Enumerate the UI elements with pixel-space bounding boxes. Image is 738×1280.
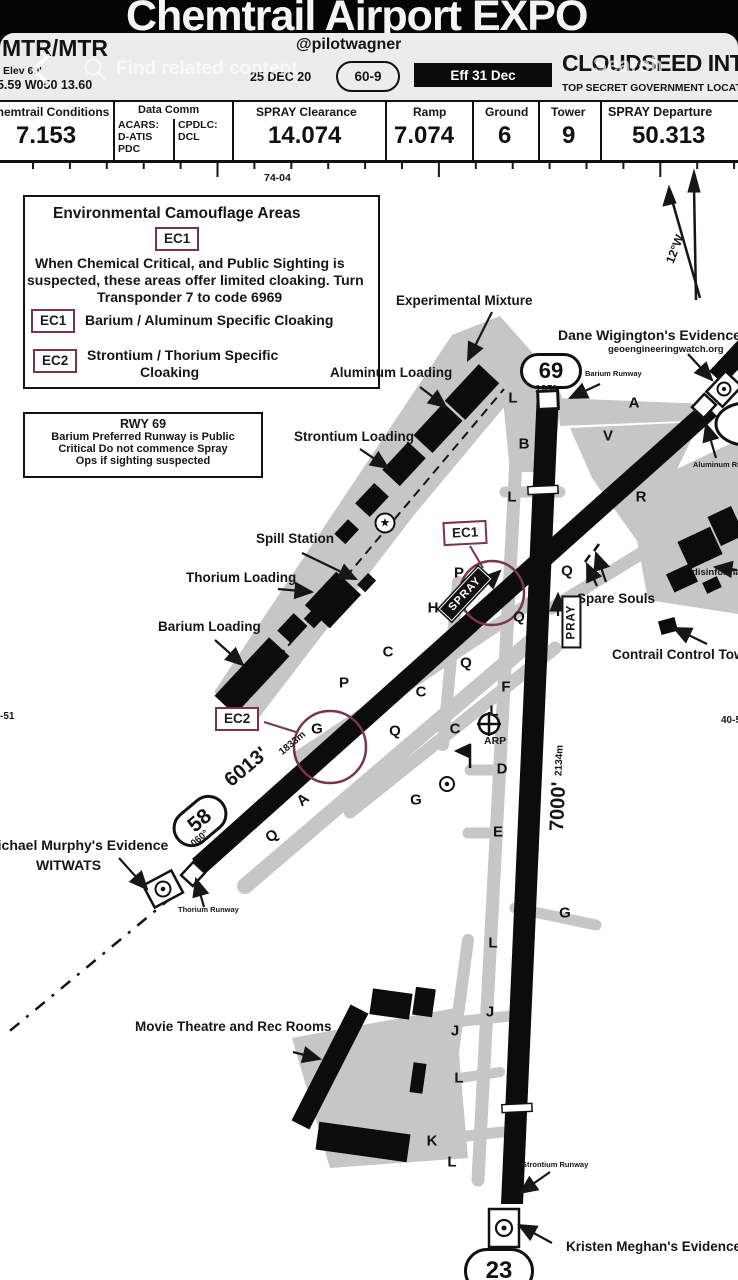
movie-theatre-label: Movie Theatre and Rec Rooms (135, 1019, 332, 1034)
dane-evidence-label: Dane Wigington's Evidence (558, 327, 738, 343)
rwy69-note-box: RWY 69 Barium Preferred Runway is Public… (23, 412, 263, 478)
pray-sign: PRAY (561, 596, 581, 649)
taxiway-letter: L (454, 1070, 463, 1087)
taxiway-letter: Q (513, 609, 525, 626)
ec-box-body-line2: suspected, these areas offer limited clo… (27, 272, 364, 288)
search-pill[interactable] (82, 56, 108, 87)
contrail-tower-label: Contrail Control Tower (612, 647, 738, 662)
michael-evidence-label: Michael Murphy's Evidence (0, 837, 168, 853)
airport-diagram-canvas (0, 0, 738, 1280)
search-icon (82, 56, 108, 82)
taxiway-letter: L (508, 390, 517, 407)
taxiway-letter: H (428, 600, 439, 617)
ec1-description: Barium / Aluminum Specific Cloaking (85, 312, 333, 328)
kristen-evidence-label: Kristen Meghan's Evidence (566, 1239, 738, 1254)
acars-info: ACARS: D-ATIS PDC (118, 119, 159, 155)
thorium-runway-label: Thorium Runway (178, 905, 239, 914)
taxiway-letter: G (311, 721, 323, 738)
circle-dot-center (445, 782, 449, 786)
scale-ruler (33, 161, 734, 177)
taxiway-letter: J (486, 1004, 494, 1021)
ec1-map-badge: EC1 (442, 520, 487, 546)
taxiway-letter: Q (389, 723, 401, 740)
taxiway-letter: R (636, 489, 647, 506)
approach-dash-dot-line (6, 897, 172, 1034)
coord-label-right: 40-5 (721, 715, 738, 726)
ec2-description-line1: Strontium / Thorium Specific (87, 347, 278, 363)
ground-value: 6 (498, 122, 511, 150)
dane-evidence-url: geoengineeringwatch.org (608, 344, 724, 355)
ec1-legend-badge: EC1 (155, 227, 199, 251)
ec-box-title: Environmental Camouflage Areas (53, 205, 301, 223)
effective-date-badge: Eff 31 Dec (414, 63, 552, 87)
arp-label: ARP (484, 735, 506, 747)
clearance-value: 14.074 (268, 122, 341, 150)
aluminum-loading-label: Aluminum Loading (330, 365, 452, 380)
experimental-mixture-label: Experimental Mixture (396, 293, 533, 308)
search-button[interactable]: Search (593, 54, 663, 78)
atis-label: Chemtrail Conditions (0, 105, 109, 119)
airport-subtitle: TOP SECRET GOVERNMENT LOCATION (562, 83, 738, 94)
tower-value: 9 (562, 122, 575, 150)
taxiway-letter: P (454, 565, 464, 582)
taxiway-letter: C (416, 684, 427, 701)
taxiway-letter: E (493, 824, 503, 841)
aluminum-runway-label: Aluminum Runway (693, 460, 738, 469)
taxiway-letter: Q (460, 655, 472, 672)
taxiway-letter: C (383, 644, 394, 661)
cpdlc-info: CPDLC: DCL (178, 119, 218, 143)
ground-label: Ground (485, 105, 528, 119)
rwy-box-line2: Barium Preferred Runway is Public (25, 431, 261, 443)
taxiway-letter: V (603, 428, 613, 445)
runway-69-heading: 195° (535, 383, 557, 395)
runway-number-oval-ne (716, 403, 738, 445)
coord-label-top: 74-04 (264, 172, 291, 184)
taxiway-letter: L (507, 489, 516, 506)
thorium-loading-label: Thorium Loading (186, 570, 296, 585)
author-handle: @pilotwagner (296, 36, 401, 54)
wind-flag-icon (455, 744, 470, 768)
taxiway-letter: J (451, 1023, 459, 1040)
taxiway-letter: L (489, 703, 498, 720)
spare-souls-label: Spare Souls (577, 591, 655, 606)
taxiway-letter: G (410, 792, 422, 809)
taxiway-letter: A (629, 395, 640, 412)
tower-label: Tower (551, 105, 585, 119)
ec-legend-box: Environmental Camouflage Areas EC1 When … (23, 195, 380, 389)
rwy-box-line4: Ops if sighting suspected (25, 455, 261, 467)
ec-box-body-line1: When Chemical Critical, and Public Sight… (35, 255, 345, 271)
taxiway-letter: Q (561, 563, 573, 580)
taxiway-letter: F (501, 679, 510, 696)
coord-label-left: -51 (0, 711, 14, 722)
datacomm-label: Data Comm (138, 104, 199, 116)
search-placeholder-text[interactable]: Find related content (116, 58, 298, 80)
back-icon (28, 52, 54, 88)
atis-value: 7.153 (16, 122, 76, 150)
departure-value: 50.313 (632, 122, 705, 150)
taxiway-letter: L (488, 935, 497, 952)
ec2-list-badge: EC2 (33, 349, 77, 373)
ec2-description-line2: Cloaking (140, 364, 199, 380)
taxiway-letter: G (559, 905, 571, 922)
taxiway-letter: K (427, 1133, 438, 1150)
taxiway-letter: P (339, 675, 349, 692)
star-icon: ★ (380, 516, 391, 530)
back-button[interactable] (28, 52, 54, 93)
runway-23-oval: 23 (464, 1248, 534, 1280)
ramp-value: 7.074 (394, 122, 454, 150)
clearance-label: SPRAY Clearance (256, 105, 357, 119)
runway-length-2134m: 2134m (553, 745, 565, 777)
rwy-box-line3: Critical Do not commence Spray (25, 443, 261, 455)
barium-loading-label: Barium Loading (158, 619, 261, 634)
chart-index-oval: 60-9 (336, 61, 400, 92)
ec2-map-badge: EC2 (215, 707, 259, 731)
ec1-list-badge: EC1 (31, 309, 75, 333)
disinformation-label: disinformation (692, 567, 738, 578)
departure-label: SPRAY Departure (608, 105, 712, 119)
taxiway-letter: C (450, 721, 461, 738)
frequency-strip: Chemtrail Conditions 7.153 Data Comm ACA… (0, 100, 738, 163)
ramp-label: Ramp (413, 105, 446, 119)
app-screen: 74-04 -51 40-5 12°W Environmental Camouf… (0, 0, 738, 1280)
witwats-label: WITWATS (36, 857, 101, 873)
taxiway-letter: B (519, 436, 530, 453)
rwy-box-line1: RWY 69 (25, 417, 261, 431)
strontium-loading-label: Strontium Loading (294, 429, 414, 444)
strontium-runway-label: Strontium Runway (522, 1160, 588, 1169)
ec-box-body-line3: Transponder 7 to code 6969 (97, 289, 282, 305)
barium-runway-label: Barium Runway (585, 369, 642, 378)
taxiway-letter: D (497, 761, 508, 778)
taxiway-letter: L (447, 1154, 456, 1171)
spill-station-label: Spill Station (256, 531, 334, 546)
runway-length-7000: 7000' (546, 781, 571, 831)
